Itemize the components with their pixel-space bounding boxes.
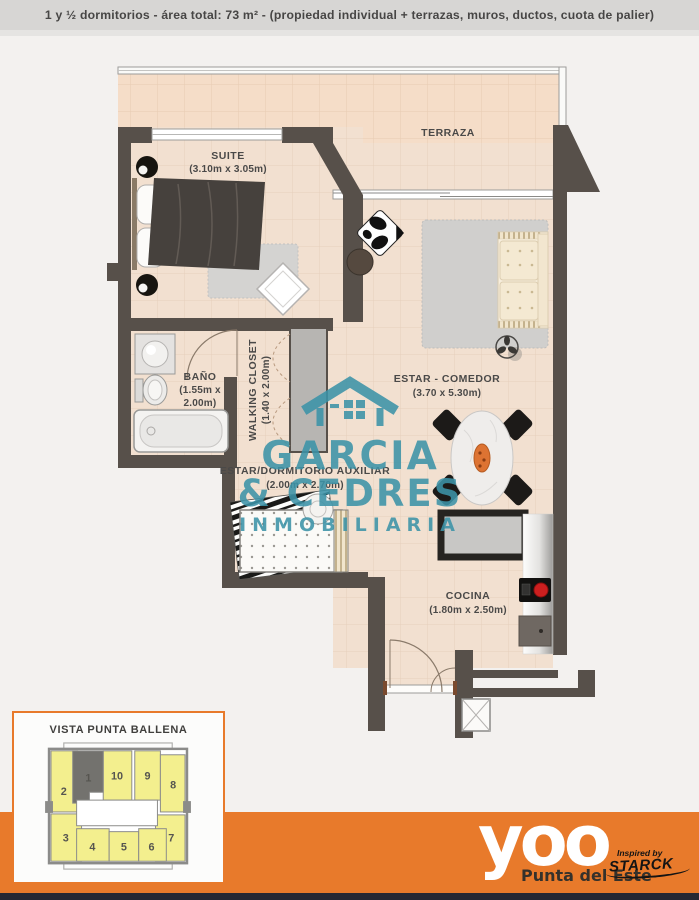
round-pillow [303,494,333,524]
ottoman [347,249,373,275]
kitchen-island [441,513,525,557]
daybed-arm [334,510,348,572]
unit-label-7: 7 [168,833,174,845]
label-aux: ESTAR/DORMITORIO AUXILIAR [220,465,390,477]
aux-room-furniture [230,490,348,580]
toilet-tank [135,379,143,402]
bedside-lamp [136,274,158,296]
label-bano-dims2: 2.00m) [184,398,217,409]
bathtub-inner [140,415,222,447]
label-walking-closet-dims: (1.40 x 2.00m) [261,356,272,424]
page: { "header": { "text": "1 y ½ dormitorios… [0,0,699,900]
unit-label-2: 2 [60,786,66,798]
unit-label-9: 9 [144,770,150,782]
header-bar: 1 y ½ dormitorios - área total: 73 m² - … [0,0,699,30]
wardrobe [290,328,327,452]
building-core [76,800,157,826]
unit-label-8: 8 [170,779,176,791]
elevator-right [183,801,191,813]
label-aux-dims: (2.00m x 2.70m) [266,480,344,491]
label-terraza: TERRAZA [421,127,475,139]
building-inset: VISTA PUNTA BALLENA 1 2 3 4 5 6 7 8 [12,711,225,884]
floorplan: SUITE (3.10m x 3.05m) TERRAZA BAÑO (1.55… [50,58,620,738]
label-estar-comedor-dims: (3.70 x 5.30m) [413,388,481,399]
unit-label-5: 5 [120,841,126,853]
base-cabinet [519,616,551,646]
sliding-door [333,190,553,199]
duct-shaft [462,699,490,731]
label-suite: SUITE [211,150,244,162]
door-post [383,681,387,695]
unit-label-6: 6 [148,841,154,853]
label-bano-dims1: (1.55m x [179,385,221,396]
table-centerpiece [474,444,490,472]
inset-title: VISTA PUNTA BALLENA [14,724,223,736]
label-bano: BAÑO [184,370,217,383]
unit-label-1: 1 [85,772,91,784]
bed-headboard [132,178,137,270]
lamp-highlight [139,166,148,175]
terrace-railing-right [559,67,566,127]
label-cocina-dims: (1.80m x 2.50m) [429,605,507,616]
door-post [453,681,457,695]
burner [534,583,548,597]
header-text: 1 y ½ dormitorios - área total: 73 m² - … [45,8,654,22]
unit-label-4: 4 [89,841,95,853]
bedside-lamp [136,156,158,178]
unit-label-3: 3 [62,833,68,845]
lamp-highlight [139,284,148,293]
cream-sofa [498,232,548,328]
label-walking-closet: WALKING CLOSET [247,339,259,441]
footer-dark-strip [0,893,699,900]
entry-threshold [385,685,455,693]
label-suite-dims: (3.10m x 3.05m) [189,164,267,175]
unit-label-10: 10 [111,770,123,782]
label-estar-comedor: ESTAR - COMEDOR [394,373,500,385]
building-map: 1 2 3 4 5 6 7 8 9 10 [17,740,221,876]
label-cocina: COCINA [446,590,490,602]
elevator-left [45,801,53,813]
bed-duvet [148,178,265,270]
sink-basin [142,341,168,367]
header-divider [0,30,699,36]
